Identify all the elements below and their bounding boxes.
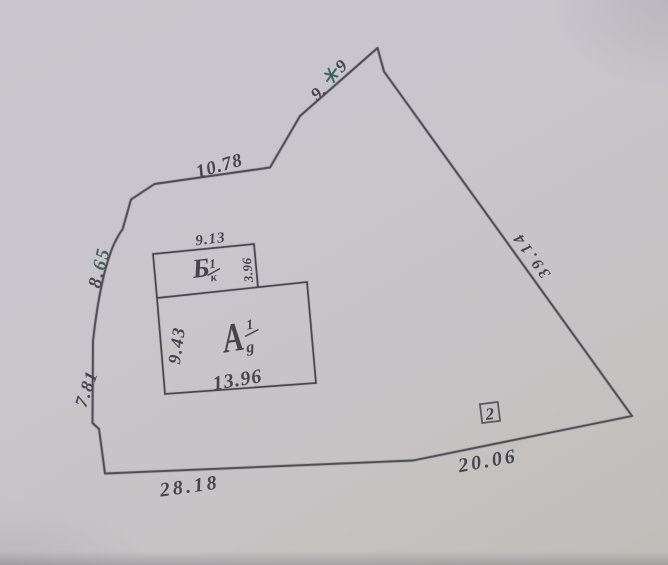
svg-text:10.78: 10.78: [194, 150, 246, 183]
svg-text:13.96: 13.96: [211, 365, 264, 395]
svg-text:8.65: 8.65: [84, 245, 114, 290]
svg-text:А: А: [218, 314, 247, 362]
svg-text:1: 1: [245, 318, 254, 334]
svg-text:к: к: [210, 270, 219, 285]
svg-text:3.96: 3.96: [239, 257, 256, 284]
svg-text:7.81: 7.81: [71, 368, 102, 410]
svg-text:28.18: 28.18: [157, 471, 220, 501]
svg-text:9.43: 9.43: [164, 325, 189, 365]
svg-text:2: 2: [483, 404, 495, 424]
svg-text:9.: 9.: [307, 80, 330, 104]
